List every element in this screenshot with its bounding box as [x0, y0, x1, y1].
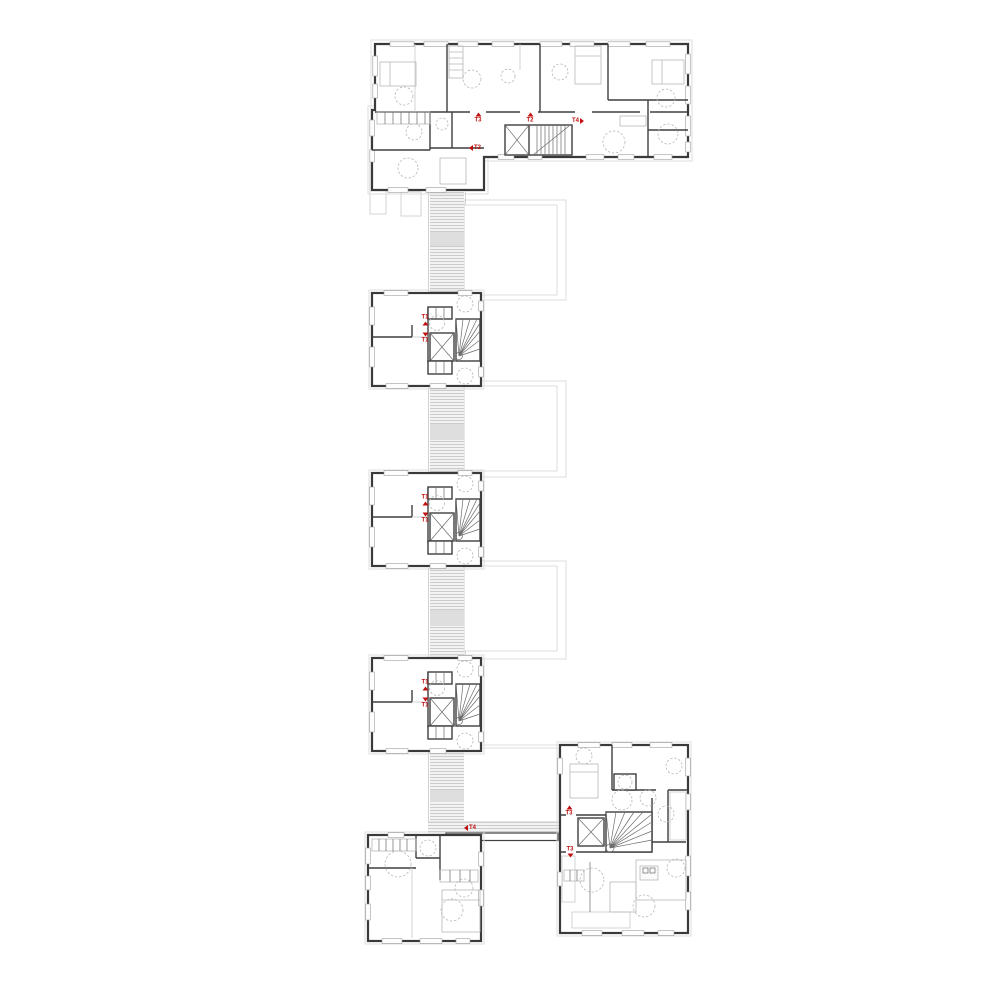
- terrace-3: [464, 561, 566, 659]
- row-house-unit-2: [369, 470, 484, 569]
- stair-core: [505, 125, 572, 155]
- bottom-left-building: [365, 832, 484, 944]
- spiral-stair-icon: [606, 812, 652, 852]
- terrace-2: [464, 381, 566, 477]
- terrace-1: [464, 200, 566, 300]
- floor-plan-svg: [0, 0, 1000, 1000]
- top-building: [368, 40, 692, 194]
- stair-core: [578, 812, 652, 852]
- row-house-unit-3: [369, 655, 484, 754]
- floor-plan-canvas: T3T2T4T2T1T1T1T1T1T1T3T3T4: [0, 0, 1000, 1000]
- bottom-right-building: [557, 742, 691, 936]
- row-house-unit-1: [369, 290, 484, 389]
- elevator-icon: [578, 818, 604, 846]
